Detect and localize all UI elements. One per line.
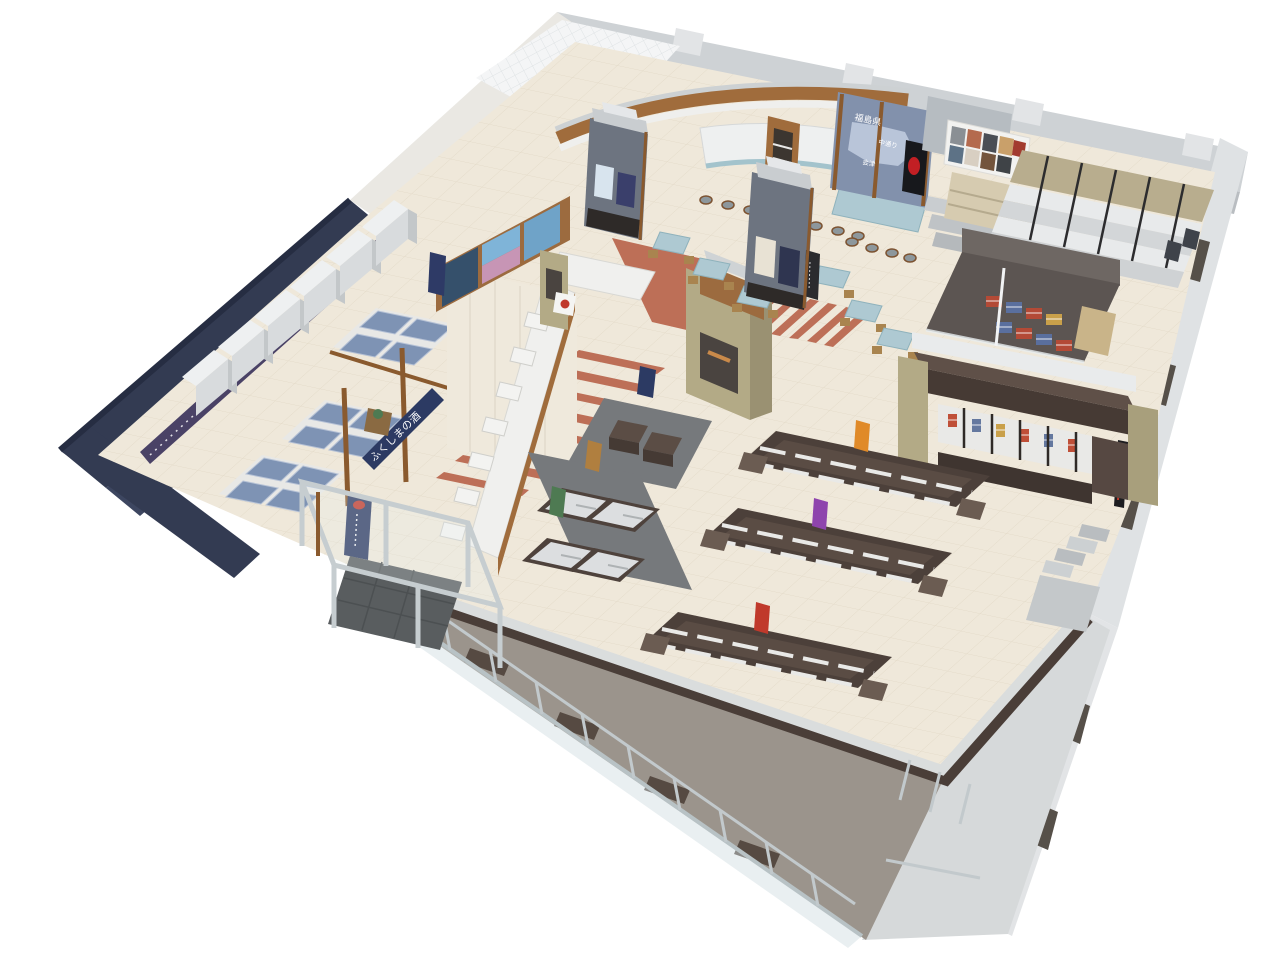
fukushima-map-wall (830, 92, 935, 208)
tower-poster (616, 172, 636, 208)
tower-poster (754, 236, 776, 278)
kiosk-side (1092, 436, 1128, 500)
plant (373, 409, 383, 419)
aisle-sign-red (754, 602, 770, 634)
red-circle-mark (561, 300, 570, 309)
display-tower-right (744, 156, 820, 310)
category-sign-green (549, 486, 566, 518)
aisle-sign-purple (812, 498, 828, 530)
category-sign-tan (585, 440, 602, 472)
blue-poster (428, 252, 446, 296)
store-3d-render: 福島県 中通り 会津 ふくしまの酒 (0, 0, 1280, 962)
tower-poster (778, 246, 800, 288)
khaki-pillar-kiosk-left (898, 356, 928, 470)
tower-poster (594, 164, 614, 200)
banner-red-mark (908, 157, 920, 175)
display-tower-left (584, 102, 648, 240)
aisle-sign-orange (854, 420, 870, 452)
khaki-wall-kiosk-right (1128, 404, 1158, 506)
category-sign-navy (637, 366, 656, 398)
floorplan-svg: 福島県 中通り 会津 ふくしまの酒 (0, 0, 1280, 962)
